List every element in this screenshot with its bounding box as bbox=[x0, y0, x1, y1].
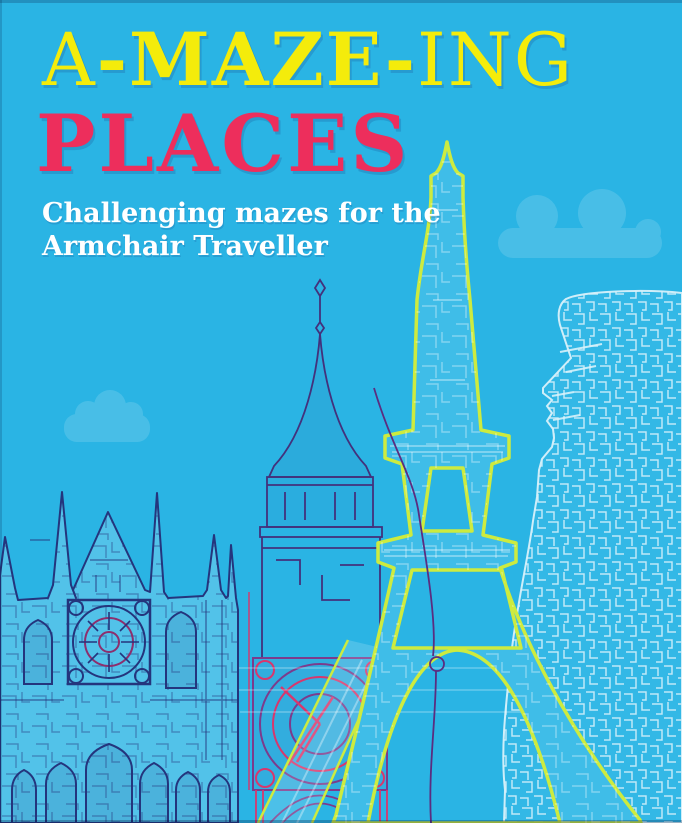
big-ben-cornice bbox=[260, 527, 382, 537]
big-ben-spire bbox=[269, 334, 371, 477]
title-part-maze: -MAZE- bbox=[97, 17, 417, 103]
title-line-1: A-MAZE-ING bbox=[42, 24, 574, 97]
moai-maze-texture bbox=[503, 291, 682, 823]
book-cover: A-MAZE-ING PLACES Challenging mazes for … bbox=[0, 0, 682, 823]
subtitle: Challenging mazes for theArmchair Travel… bbox=[42, 198, 441, 264]
title-part-ing: ING bbox=[417, 18, 574, 103]
big-ben-shaft bbox=[262, 537, 380, 658]
big-ben-finial bbox=[315, 280, 325, 334]
subtitle-line-2: Armchair Traveller bbox=[42, 231, 328, 262]
moai-statue-maze-graphic bbox=[503, 291, 682, 823]
cathedral-maze-graphic bbox=[0, 492, 238, 823]
title-line-2: PLACES bbox=[36, 104, 410, 183]
cloud-icon-right bbox=[498, 189, 662, 258]
cloud-icon-left bbox=[64, 390, 150, 442]
subtitle-line-1: Challenging mazes for the bbox=[42, 198, 441, 229]
title-part-a: A bbox=[42, 18, 97, 103]
